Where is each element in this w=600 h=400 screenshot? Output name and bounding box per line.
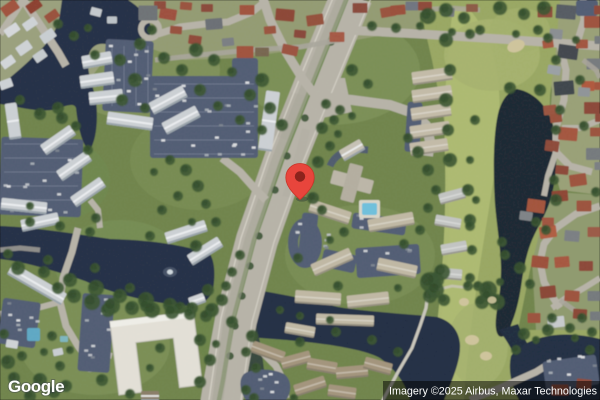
svg-text:Imagery ©2025 Airbus, Maxar Te: Imagery ©2025 Airbus, Maxar Technologies [389, 386, 597, 398]
svg-text:Google: Google [8, 377, 64, 396]
